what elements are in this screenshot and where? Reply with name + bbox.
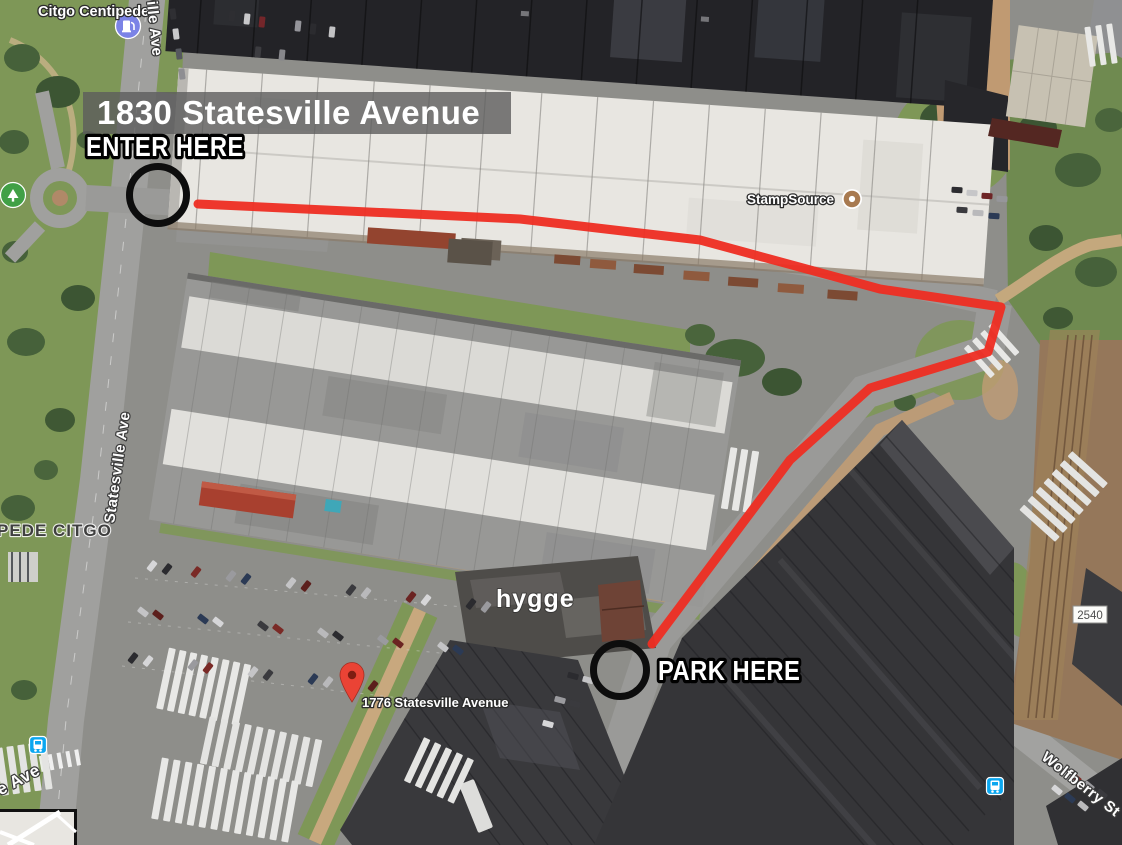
citgo-centipede-label: Citgo Centipede: [38, 4, 149, 20]
map-canvas[interactable]: Citgo Centipede StampSource 1776 Statesv…: [0, 0, 1122, 845]
address-badge-2540: 2540: [1073, 606, 1107, 623]
pede-citgo-label: PEDE CITGO: [0, 521, 112, 540]
stampsource-poi-icon[interactable]: [842, 189, 862, 209]
bus-stop-icon[interactable]: [30, 737, 47, 754]
marker-1776-label: 1776 Statesville Avenue: [362, 695, 508, 710]
map-screenshot: Citgo Centipede StampSource 1776 Statesv…: [0, 0, 1122, 845]
bus-stop-icon-2[interactable]: [987, 778, 1004, 795]
address-badge-text: 2540: [1077, 610, 1103, 622]
hygge-label: hygge: [496, 585, 575, 613]
title-bar: 1830 Statesville Avenue: [83, 92, 511, 134]
park-here-label: PARK HERE: [658, 657, 800, 687]
page-title: 1830 Statesville Avenue: [97, 94, 480, 131]
stampsource-label: StampSource: [747, 192, 835, 207]
park-icon[interactable]: [1, 183, 26, 208]
park-here-banner: PARK HERE: [658, 657, 800, 687]
inset-map[interactable]: [0, 809, 77, 845]
enter-here-label: ENTER HERE: [86, 133, 244, 163]
enter-here-banner: ENTER HERE: [86, 133, 244, 163]
